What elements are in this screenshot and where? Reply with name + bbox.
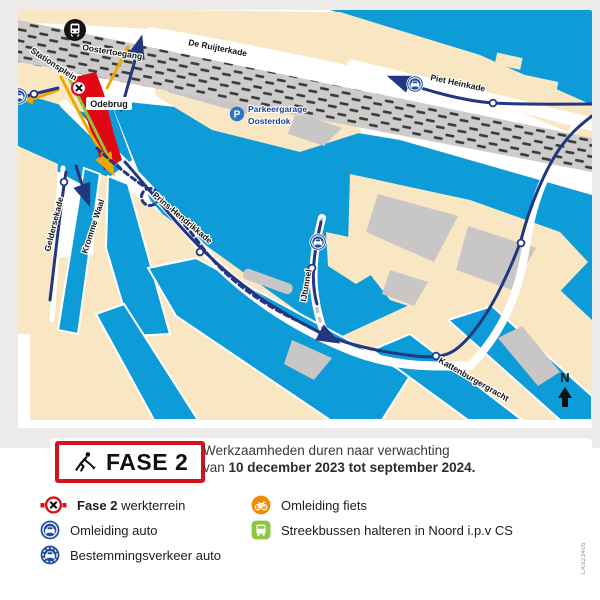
detour-car-icon bbox=[40, 520, 60, 540]
detour-bike-icon bbox=[251, 495, 271, 515]
legend-item-bus: Streekbussen halteren in Noord i.p.v CS bbox=[251, 521, 513, 539]
phase-label: FASE 2 bbox=[106, 449, 188, 476]
parking-icon: P bbox=[230, 107, 244, 121]
legend-label-destination-car: Bestemmingsverkeer auto bbox=[70, 548, 221, 563]
svg-text:Parkeergarage: Parkeergarage bbox=[248, 104, 307, 114]
detour-car-icon-ijtunnel bbox=[310, 234, 326, 250]
description-line2-prefix: van bbox=[203, 460, 229, 475]
station-icon bbox=[64, 19, 86, 41]
legend-item-work-area: Fase 2 werkterrein bbox=[40, 496, 221, 514]
work-area-icon-map bbox=[72, 81, 86, 95]
svg-text:Odebrug: Odebrug bbox=[90, 99, 128, 109]
description-line1: Werkzaamheden duren naar verwachting bbox=[203, 443, 450, 458]
detour-map: P Stationsplein Oostertoegang De Ruijter… bbox=[0, 0, 600, 450]
odebrug-label: Odebrug bbox=[86, 97, 132, 110]
work-area-icon bbox=[40, 495, 67, 515]
legend-item-detour-bike: Omleiding fiets bbox=[251, 496, 513, 514]
legend-item-destination-car: Bestemmingsverkeer auto bbox=[40, 546, 221, 564]
works-description: Werkzaamheden duren naar verwachting van… bbox=[203, 442, 475, 476]
phase-box: FASE 2 bbox=[55, 441, 205, 483]
destination-traffic-car-icon bbox=[40, 545, 60, 565]
legend-item-detour-car: Omleiding auto bbox=[40, 521, 221, 539]
svg-text:N: N bbox=[560, 370, 569, 385]
svg-text:P: P bbox=[234, 109, 241, 120]
legend-label-detour-car: Omleiding auto bbox=[70, 523, 157, 538]
legend-left-column: Fase 2 werkterrein Omleiding auto Bestem… bbox=[40, 496, 221, 564]
svg-text:Oosterdok: Oosterdok bbox=[248, 116, 291, 126]
description-line2-dates: 10 december 2023 tot september 2024. bbox=[229, 460, 476, 475]
legend-label-work-area: Fase 2 werkterrein bbox=[77, 498, 185, 513]
legend-right-column: Omleiding fiets Streekbussen halteren in… bbox=[251, 496, 513, 539]
regional-bus-icon bbox=[251, 520, 271, 540]
worker-icon bbox=[72, 451, 97, 474]
document-code: LAS23405 bbox=[581, 542, 587, 574]
legend-label-detour-bike: Omleiding fiets bbox=[281, 498, 367, 513]
detour-car-icon-pietheinkade bbox=[407, 76, 423, 92]
legend-label-bus: Streekbussen halteren in Noord i.p.v CS bbox=[281, 523, 513, 538]
infographic-root: P Stationsplein Oostertoegang De Ruijter… bbox=[0, 0, 600, 600]
